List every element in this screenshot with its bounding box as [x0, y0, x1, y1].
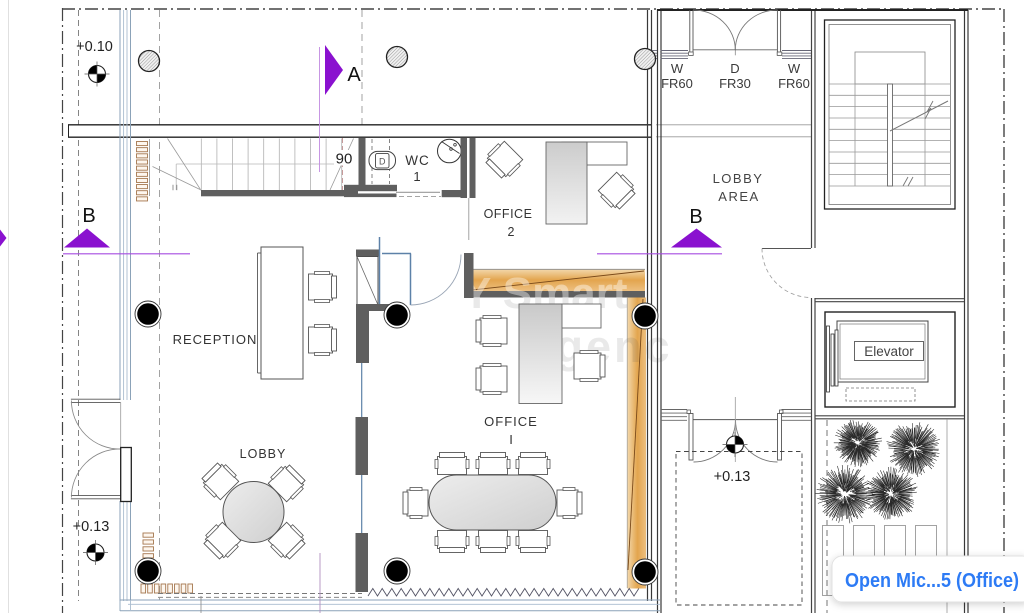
- svg-text:Open Mic...5 (Office): Open Mic...5 (Office): [845, 570, 1019, 592]
- svg-text:FR30: FR30: [719, 76, 751, 91]
- svg-text:AREA: AREA: [718, 189, 759, 204]
- svg-text:LOBBY: LOBBY: [240, 447, 287, 461]
- svg-text:LOBBY: LOBBY: [713, 171, 764, 186]
- svg-text:I: I: [509, 432, 513, 447]
- svg-text:OFFICE: OFFICE: [484, 414, 538, 429]
- svg-text:W: W: [671, 61, 684, 76]
- svg-text:W: W: [788, 61, 801, 76]
- svg-text:B: B: [689, 206, 702, 228]
- svg-text:RECEPTION: RECEPTION: [173, 332, 258, 347]
- svg-text:+0.13: +0.13: [714, 469, 751, 485]
- svg-text:D: D: [730, 61, 739, 76]
- svg-text:A: A: [347, 64, 361, 86]
- svg-text:1: 1: [413, 169, 420, 184]
- svg-text:+0.10: +0.10: [76, 39, 113, 55]
- svg-text:90: 90: [336, 151, 353, 168]
- svg-text:2: 2: [508, 225, 515, 239]
- svg-text:FR60: FR60: [778, 76, 810, 91]
- svg-text:FR60: FR60: [661, 76, 693, 91]
- svg-text:Elevator: Elevator: [864, 344, 914, 359]
- svg-text:WC: WC: [405, 153, 430, 168]
- svg-text:B: B: [82, 205, 95, 227]
- svg-text:D: D: [379, 156, 386, 166]
- svg-text:+0.13: +0.13: [73, 519, 110, 535]
- svg-text:OFFICE: OFFICE: [484, 207, 533, 221]
